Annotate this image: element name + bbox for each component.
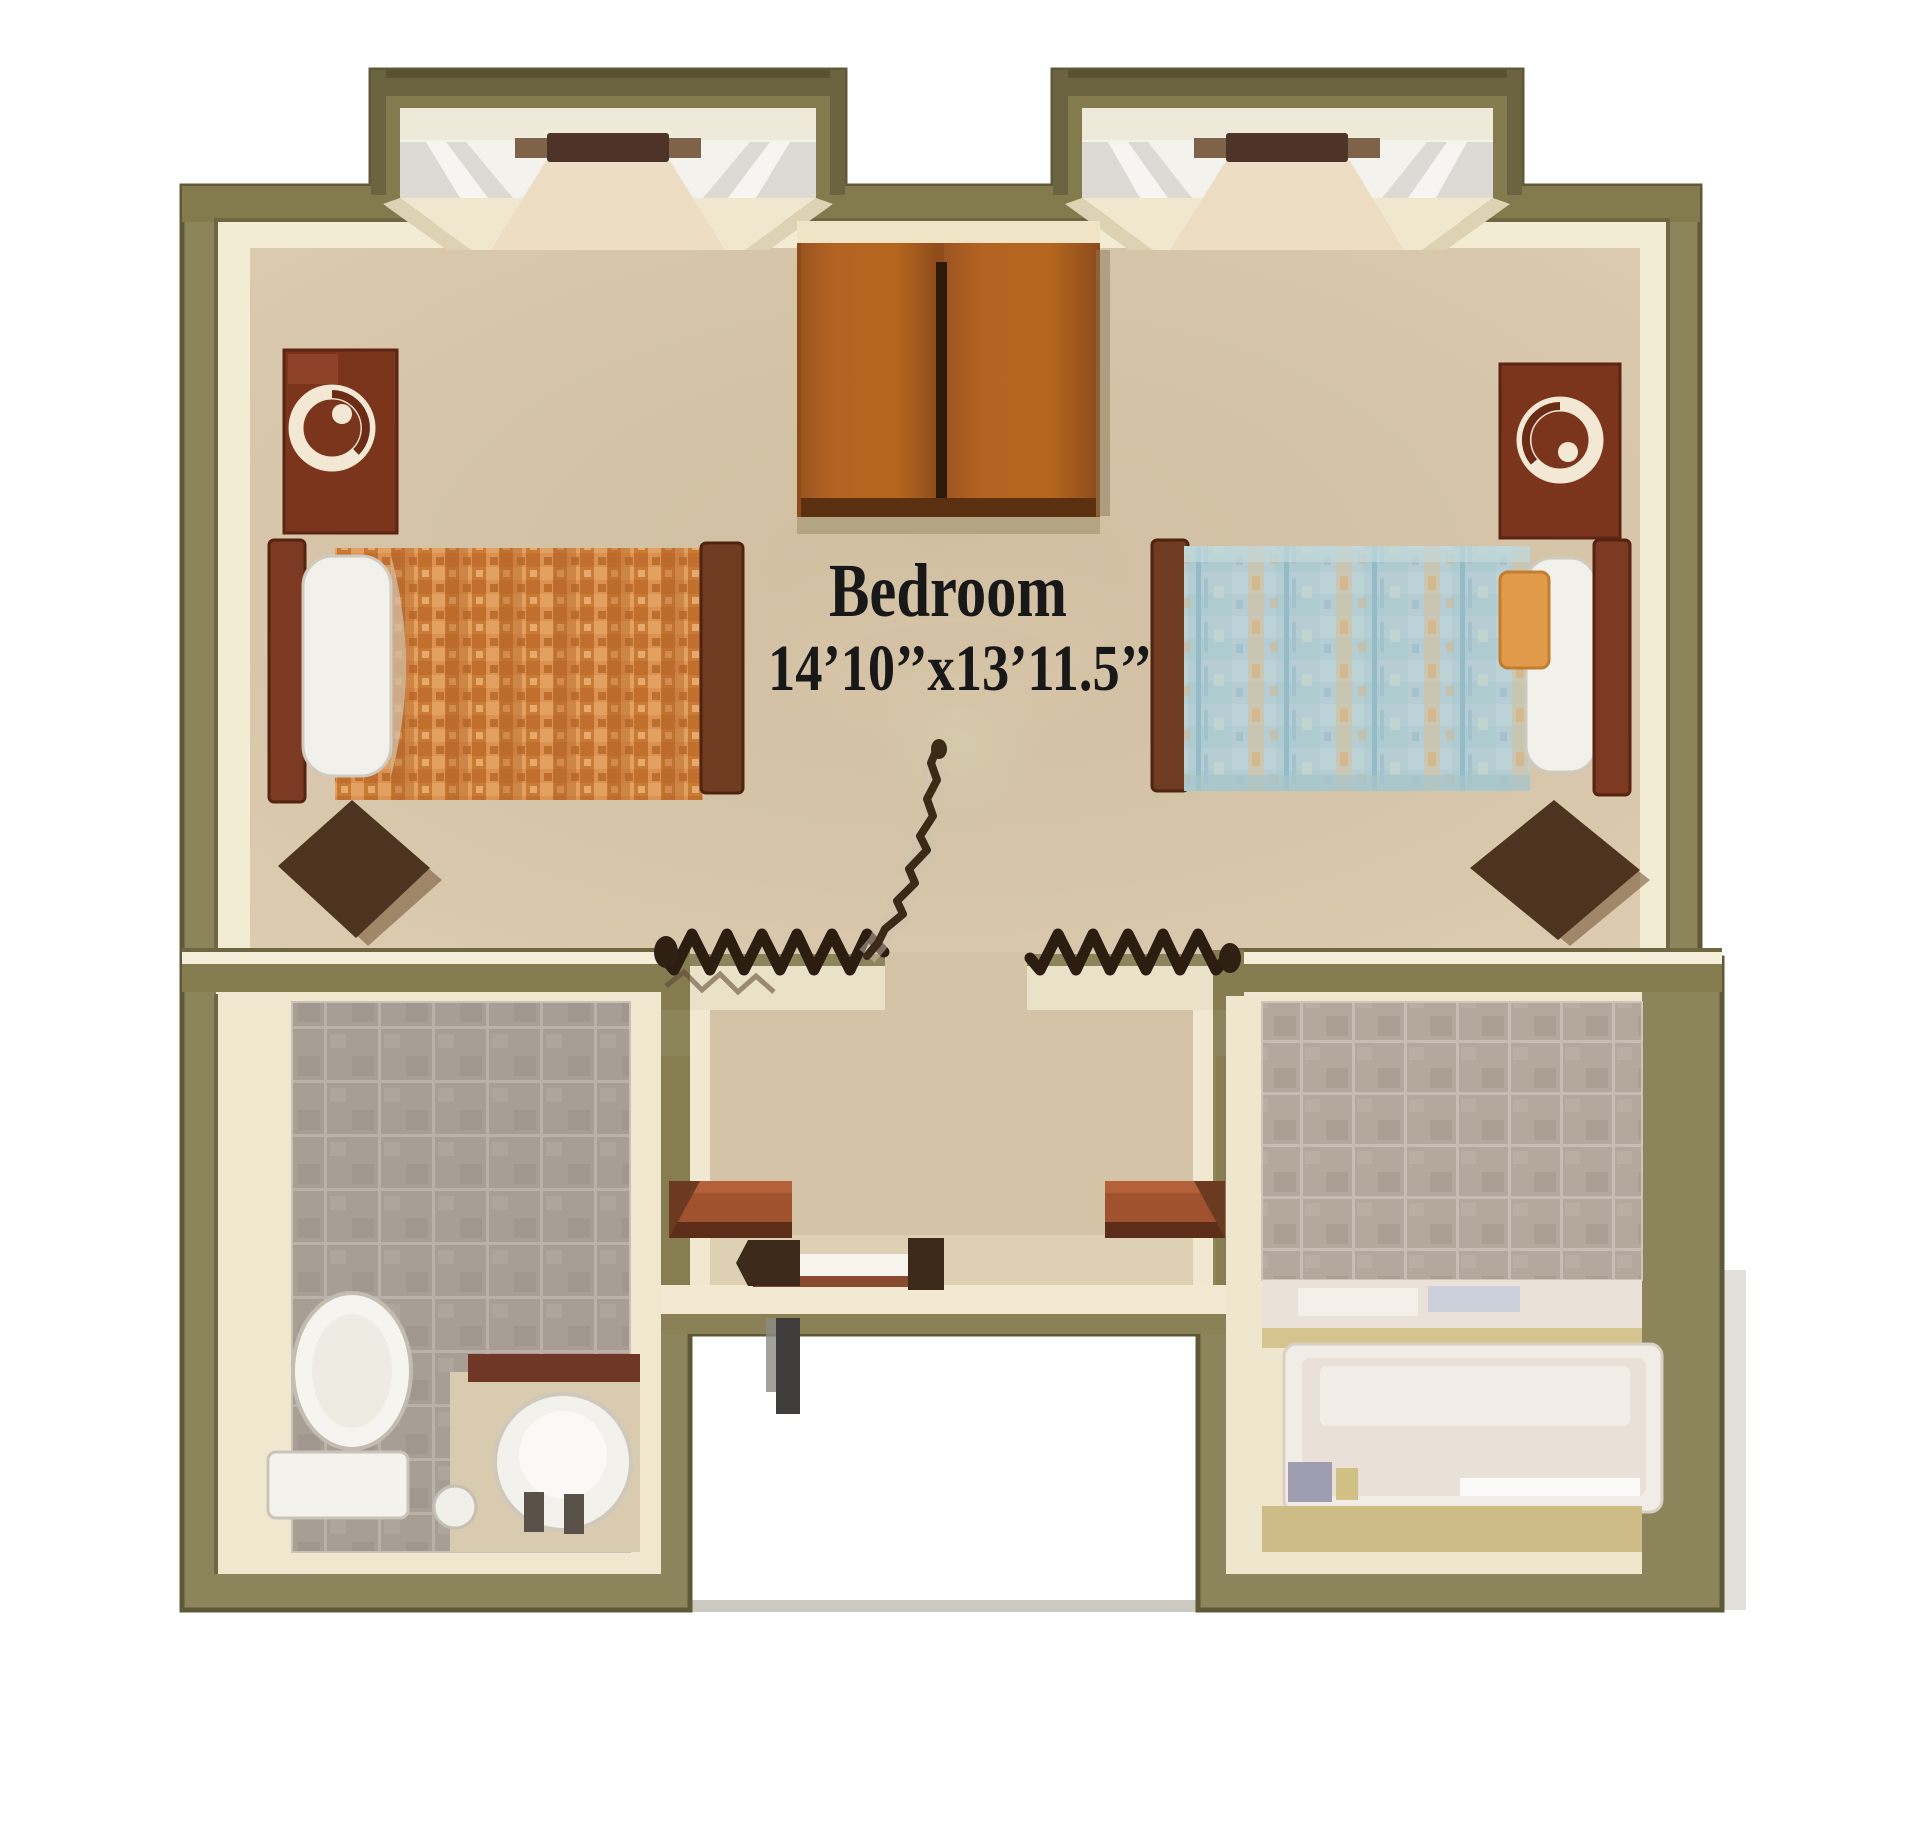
svg-text:Bedroom: Bedroom xyxy=(829,549,1067,633)
svg-text:14’10’’x13’11.5’’: 14’10’’x13’11.5’’ xyxy=(768,632,1152,705)
